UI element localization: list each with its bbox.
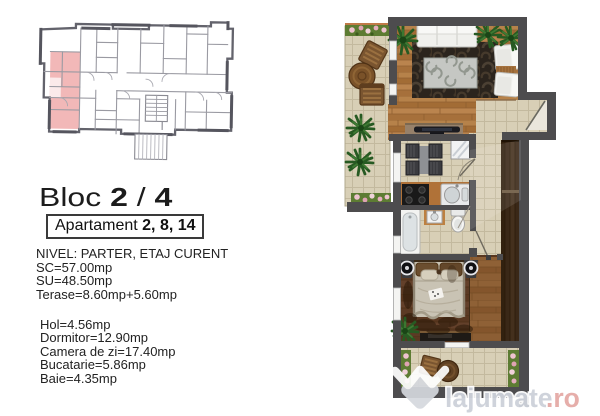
svg-text:.ro: .ro (546, 383, 580, 413)
svg-text:lajumate: lajumate (445, 383, 553, 413)
